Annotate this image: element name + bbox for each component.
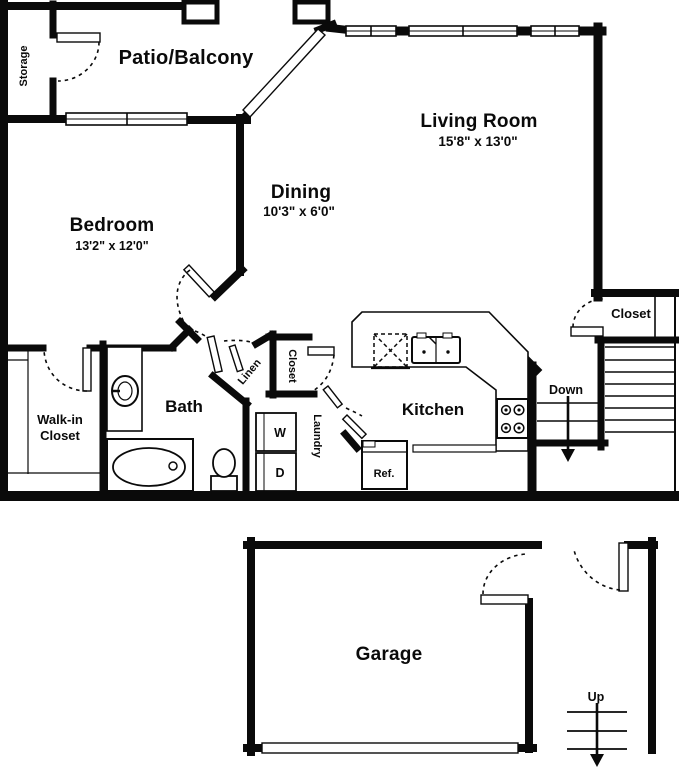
door-leaf <box>571 327 603 336</box>
sink-handle <box>417 333 426 338</box>
up-label: Up <box>588 690 605 704</box>
toilet-tank <box>211 476 237 491</box>
washer-label: W <box>274 426 286 440</box>
refrigerator <box>362 441 407 489</box>
down-label: Down <box>549 383 583 397</box>
door-leaf <box>619 543 628 591</box>
sliding-door-leaf <box>243 29 325 117</box>
walkin-closet-label-line2: Closet <box>40 428 80 443</box>
storage-door <box>57 33 100 81</box>
patio-slider-door <box>240 24 333 121</box>
down-arrow-icon <box>561 396 575 462</box>
walkin-closet-label-line1: Walk-in <box>37 412 83 427</box>
door-leaf <box>308 347 334 355</box>
garage-level <box>247 541 654 767</box>
range-stove <box>497 399 528 438</box>
living-room-windows <box>346 26 579 36</box>
toilet <box>213 449 235 477</box>
sink-drain-icon <box>446 350 449 353</box>
floor-plan-svg: Patio/Balcony Storage Living Room 15'8" … <box>0 0 679 768</box>
stair-closet-label: Closet <box>611 306 651 321</box>
door-swing-arc <box>313 355 334 391</box>
garage-door <box>262 743 518 753</box>
bedroom-label: Bedroom <box>70 215 155 236</box>
dining-dims: 10'3" x 6'0" <box>263 204 335 219</box>
walkin-closet-door <box>44 348 91 391</box>
hall-entry-door <box>574 543 628 591</box>
garage-walls <box>247 541 654 752</box>
garage-label: Garage <box>356 644 423 665</box>
stairs-up <box>567 703 627 767</box>
hall-closet-label: Closet <box>286 349 298 383</box>
bedroom-windows <box>66 113 187 125</box>
living-room-label: Living Room <box>420 111 537 132</box>
patio-label: Patio/Balcony <box>119 47 255 69</box>
sink-drain-icon <box>422 350 425 353</box>
kitchen-counter-edge <box>413 445 496 452</box>
garage-entry-door <box>481 554 528 604</box>
bath-label: Bath <box>165 397 203 416</box>
door-leaf <box>481 595 528 604</box>
door-leaf <box>229 345 243 372</box>
sink-handle <box>443 333 452 338</box>
kitchen-label: Kitchen <box>402 400 464 419</box>
door-swing-arc <box>224 340 254 343</box>
patio-post <box>295 2 328 22</box>
interior-walls <box>0 118 677 493</box>
door-leaf <box>184 265 214 297</box>
door-swing-arc <box>346 408 362 416</box>
door-leaf <box>57 33 100 42</box>
door-leaf <box>323 386 342 408</box>
door-leaf <box>207 336 222 373</box>
refrigerator-label: Ref. <box>374 468 395 480</box>
door-swing-arc <box>574 550 620 590</box>
bedroom-dims: 13'2" x 12'0" <box>75 239 148 253</box>
storage-label: Storage <box>18 46 30 87</box>
bathtub <box>107 439 193 491</box>
door-swing-arc <box>44 350 87 391</box>
hall-closet-door <box>308 347 334 391</box>
wall <box>345 434 357 448</box>
wall <box>256 335 271 344</box>
door-swing-arc <box>573 299 603 327</box>
dryer-label: D <box>275 466 284 480</box>
living-room-dims: 15'8" x 13'0" <box>438 134 517 149</box>
refrigerator-hinge <box>363 441 375 447</box>
patio-post <box>184 2 217 22</box>
laundry-label: Laundry <box>311 414 323 458</box>
dining-label: Dining <box>271 182 331 203</box>
door-swing-arc <box>58 42 99 81</box>
bedroom-door <box>177 265 214 322</box>
door-swing-arc <box>177 270 190 322</box>
floor-plan-page: Patio/Balcony Storage Living Room 15'8" … <box>0 0 679 768</box>
door-leaf <box>83 348 91 391</box>
door-swing-arc <box>483 554 527 594</box>
wall <box>215 270 242 296</box>
stair-closet-door <box>571 299 603 336</box>
